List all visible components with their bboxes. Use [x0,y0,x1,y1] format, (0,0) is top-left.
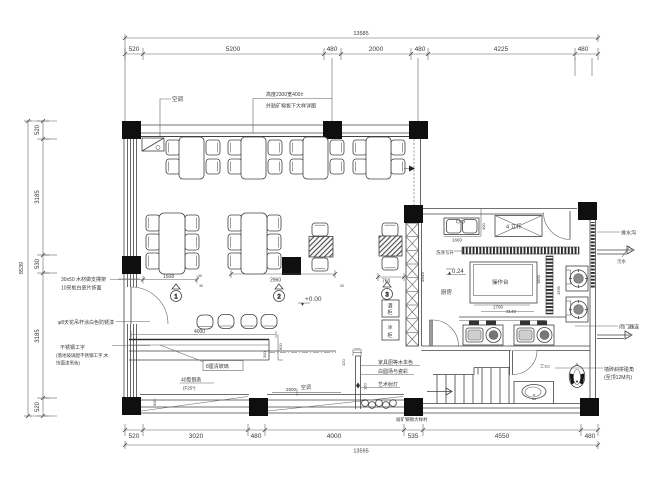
svg-text:酒: 酒 [387,303,392,310]
svg-text:厨房: 厨房 [441,288,453,296]
svg-text:闭门器连: 闭门器连 [619,324,639,331]
svg-text:400: 400 [481,223,486,230]
svg-text:480: 480 [415,46,426,53]
svg-text:(落地玻璃配不锈钢工字,木: (落地玻璃配不锈钢工字,木 [56,352,109,359]
svg-text:40型钢系: 40型钢系 [181,377,202,384]
svg-text:30: 30 [199,284,203,288]
svg-text:高度2300宽400±: 高度2300宽400± [266,91,303,98]
svg-text:操作台: 操作台 [492,278,509,286]
svg-text:480: 480 [578,46,589,53]
svg-text:13595: 13595 [353,449,368,455]
svg-text:+0.00: +0.00 [305,296,322,303]
svg-text:120: 120 [341,359,346,366]
svg-text:工111: 工111 [540,364,551,369]
svg-text:墙砖斜拼碰角: 墙砖斜拼碰角 [604,366,634,373]
svg-text:1660: 1660 [452,238,463,243]
svg-text:480: 480 [251,433,262,440]
svg-text:8厘清玻璃: 8厘清玻璃 [206,363,229,370]
svg-text:家具厨等木本色: 家具厨等木本色 [378,359,413,366]
svg-text:10夹板白瓷片饰面: 10夹板白瓷片饰面 [61,285,102,292]
svg-text:排水沟: 排水沟 [621,230,636,237]
svg-text:30x50 木材做支撑架: 30x50 木材做支撑架 [61,276,106,283]
svg-text:4000: 4000 [327,433,342,440]
svg-text:艺术射灯: 艺术射灯 [378,381,398,388]
svg-text:150: 150 [363,383,368,390]
svg-text:3185: 3185 [35,329,41,343]
svg-text:坡矿钢锡大样村: 坡矿钢锡大样村 [396,416,428,423]
svg-text:3185: 3185 [35,190,41,204]
svg-text:600: 600 [278,343,283,350]
svg-text:外贴矿棉板下大样详图: 外贴矿棉板下大样详图 [266,103,316,110]
svg-text:2960: 2960 [270,278,281,284]
svg-text:空调: 空调 [301,384,311,391]
svg-text:600: 600 [152,399,157,406]
svg-text:2000: 2000 [369,46,384,53]
svg-text:1599: 1599 [556,285,561,295]
svg-text:4 立杆: 4 立杆 [506,223,522,231]
svg-text:饰面漆黑色): 饰面漆黑色) [56,360,80,367]
svg-text:φ8天花吊杆涂白色防锈漆: φ8天花吊杆涂白色防锈漆 [58,319,114,326]
svg-text:0.24: 0.24 [452,269,464,275]
svg-text:480: 480 [327,46,338,53]
svg-text:白圆场与瓷彩: 白圆场与瓷彩 [378,368,408,375]
svg-text:520: 520 [129,433,140,440]
svg-text:8539: 8539 [19,262,25,274]
svg-text:520: 520 [35,401,41,412]
svg-text:1700: 1700 [493,305,504,310]
svg-text:13585: 13585 [353,31,368,37]
svg-text:4225: 4225 [494,46,509,53]
svg-text:535: 535 [408,433,419,440]
svg-text:1800: 1800 [536,274,541,284]
svg-text:300: 300 [262,351,267,358]
svg-text:(F25*): (F25*) [183,386,196,391]
svg-text:30: 30 [340,284,344,288]
svg-text:不锈钢工字: 不锈钢工字 [60,344,85,351]
svg-text:1508: 1508 [163,274,174,280]
svg-text:480: 480 [585,433,596,440]
svg-text:3545: 3545 [420,271,425,282]
svg-text:污水: 污水 [617,258,626,265]
svg-text:530: 530 [35,258,41,269]
svg-text:520: 520 [129,46,140,53]
svg-text:4550: 4550 [495,433,510,440]
svg-text:洗涤写升: 洗涤写升 [436,249,454,256]
svg-text:冰: 冰 [387,324,392,331]
svg-text:空调: 空调 [172,95,184,103]
svg-text:2500: 2500 [286,387,297,392]
svg-text:柜: 柜 [387,309,392,316]
svg-text:3020: 3020 [189,433,204,440]
svg-text:柜: 柜 [387,332,392,339]
svg-text:30: 30 [198,274,202,278]
svg-text:200: 200 [354,347,361,352]
svg-text:3140: 3140 [506,309,517,314]
svg-text:520: 520 [35,124,41,135]
svg-text:5200: 5200 [226,46,241,53]
svg-text:(至顶12M内): (至顶12M内) [604,374,632,381]
svg-text:4000: 4000 [194,329,205,335]
